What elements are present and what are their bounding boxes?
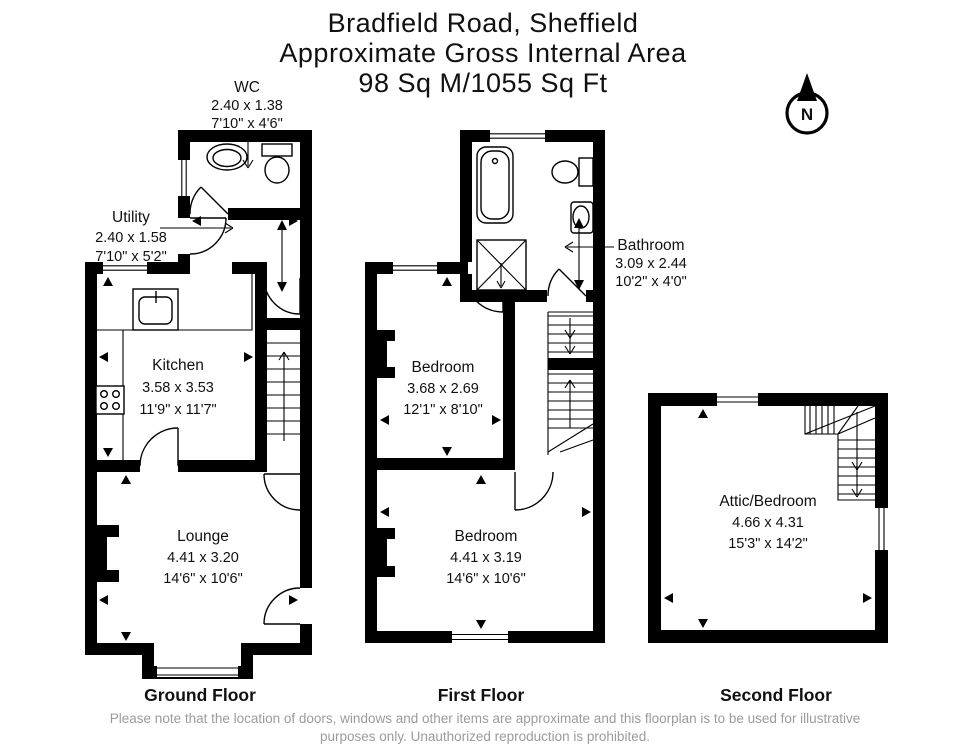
measure-arrow	[277, 220, 287, 292]
svg-text:15'3" x 14'2": 15'3" x 14'2"	[728, 536, 808, 552]
svg-text:Bathroom: Bathroom	[617, 237, 684, 254]
bedrooms-divider-wall	[377, 458, 515, 470]
kitchen-lounge-wall	[97, 460, 140, 472]
bathroom-label: Bathroom 3.09 x 2.44 10'2" x 4'0"	[565, 237, 687, 290]
kitchen-lounge-wall	[178, 460, 267, 472]
pointer-arrow	[565, 242, 614, 252]
window	[452, 631, 508, 643]
title-area-value: 98 Sq M/1055 Sq Ft	[358, 68, 607, 98]
floorplan-canvas: Bradfield Road, Sheffield Approximate Gr…	[0, 0, 970, 750]
front-door-arc	[264, 588, 312, 624]
stove-icon	[96, 386, 124, 414]
toilet-icon	[552, 158, 593, 186]
door-arc	[190, 187, 228, 214]
svg-text:Attic/Bedroom: Attic/Bedroom	[719, 493, 816, 510]
svg-text:10'2" x 4'0": 10'2" x 4'0"	[615, 274, 686, 290]
bathroom-wall	[586, 290, 593, 302]
svg-text:2.40 x 1.58: 2.40 x 1.58	[95, 230, 167, 246]
svg-text:4.66 x 4.31: 4.66 x 4.31	[732, 515, 804, 531]
sink-icon	[207, 144, 247, 170]
title-block: Bradfield Road, Sheffield Approximate Gr…	[279, 8, 687, 98]
stairs-icon	[548, 312, 593, 455]
stairs-wall	[255, 262, 267, 462]
svg-text:Kitchen: Kitchen	[152, 357, 204, 374]
bedroom1-wall	[503, 262, 515, 458]
door-arc	[178, 218, 226, 254]
svg-text:12'1" x 8'10": 12'1" x 8'10"	[403, 402, 483, 418]
bathtub-icon	[477, 147, 513, 223]
svg-text:3.09 x 2.44: 3.09 x 2.44	[615, 256, 687, 272]
window	[875, 508, 888, 550]
door-opening	[468, 262, 476, 274]
ground-floor-plan: WC 2.40 x 1.38 7'10" x 4'6" Utility 2.40…	[85, 79, 312, 705]
bay-window	[142, 643, 253, 679]
second-floor-caption: Second Floor	[720, 685, 832, 705]
stairs-icon	[805, 406, 875, 500]
cupboard-wall	[267, 318, 300, 330]
title-area-caption: Approximate Gross Internal Area	[279, 38, 687, 68]
window	[393, 262, 437, 274]
kitchen-label: Kitchen 3.58 x 3.53 11'9" x 11'7"	[139, 357, 216, 418]
second-floor-plan: Attic/Bedroom 4.66 x 4.31 15'3" x 14'2" …	[648, 393, 888, 705]
svg-text:11'9" x 11'7": 11'9" x 11'7"	[139, 402, 216, 418]
svg-text:2.40 x 1.38: 2.40 x 1.38	[211, 98, 283, 114]
window	[490, 130, 545, 142]
svg-text:14'6" x 10'6": 14'6" x 10'6"	[163, 571, 243, 587]
ground-floor-caption: Ground Floor	[144, 685, 256, 705]
title-address: Bradfield Road, Sheffield	[328, 8, 639, 38]
svg-text:Lounge: Lounge	[177, 528, 229, 545]
fireplace-recess	[387, 341, 395, 367]
svg-text:7'10" x 4'6": 7'10" x 4'6"	[211, 116, 282, 132]
north-arrow-icon	[797, 73, 817, 101]
compass: N	[787, 73, 827, 133]
door-arc	[264, 474, 300, 510]
svg-text:4.41 x 3.19: 4.41 x 3.19	[450, 550, 522, 566]
disclaimer-line1: Please note that the location of doors, …	[110, 711, 860, 726]
svg-text:Bedroom: Bedroom	[412, 359, 475, 376]
sink-icon	[133, 289, 178, 330]
window	[178, 160, 190, 196]
svg-text:3.58 x 3.53: 3.58 x 3.53	[142, 380, 214, 396]
disclaimer-line2: purposes only. Unauthorized reproduction…	[320, 729, 650, 744]
svg-text:Bedroom: Bedroom	[455, 528, 518, 545]
svg-text:WC: WC	[234, 79, 260, 96]
svg-text:7'10" x 5'2": 7'10" x 5'2"	[95, 249, 166, 265]
sink-icon	[571, 202, 593, 233]
first-floor-caption: First Floor	[438, 685, 525, 705]
fireplace-recess	[107, 537, 119, 570]
bedroom1-label: Bedroom 3.68 x 2.69 12'1" x 8'10"	[403, 359, 483, 418]
disclaimer: Please note that the location of doors, …	[110, 711, 860, 744]
svg-text:14'6" x 10'6": 14'6" x 10'6"	[446, 571, 526, 587]
lounge-label: Lounge 4.41 x 3.20 14'6" x 10'6"	[163, 528, 243, 587]
svg-text:4.41 x 3.20: 4.41 x 3.20	[167, 550, 239, 566]
pointer-arrow	[160, 223, 233, 233]
attic-label: Attic/Bedroom 4.66 x 4.31 15'3" x 14'2"	[719, 493, 816, 552]
svg-text:3.68 x 2.69: 3.68 x 2.69	[407, 381, 479, 397]
bathroom-wall	[460, 274, 472, 302]
compass-north-label: N	[801, 105, 813, 124]
first-floor-plan: Bathroom 3.09 x 2.44 10'2" x 4'0" Bedroo…	[365, 130, 687, 705]
toilet-icon	[262, 144, 292, 183]
bedroom2-label: Bedroom 4.41 x 3.19 14'6" x 10'6"	[446, 528, 526, 587]
shower-icon	[477, 240, 526, 290]
door-arc	[140, 428, 178, 466]
fireplace-recess	[387, 539, 395, 566]
floorplan-page: Bradfield Road, Sheffield Approximate Gr…	[0, 0, 970, 750]
stairs-icon	[267, 343, 300, 441]
door-arc	[515, 472, 553, 510]
window	[717, 393, 758, 406]
svg-text:Utility: Utility	[112, 209, 150, 226]
